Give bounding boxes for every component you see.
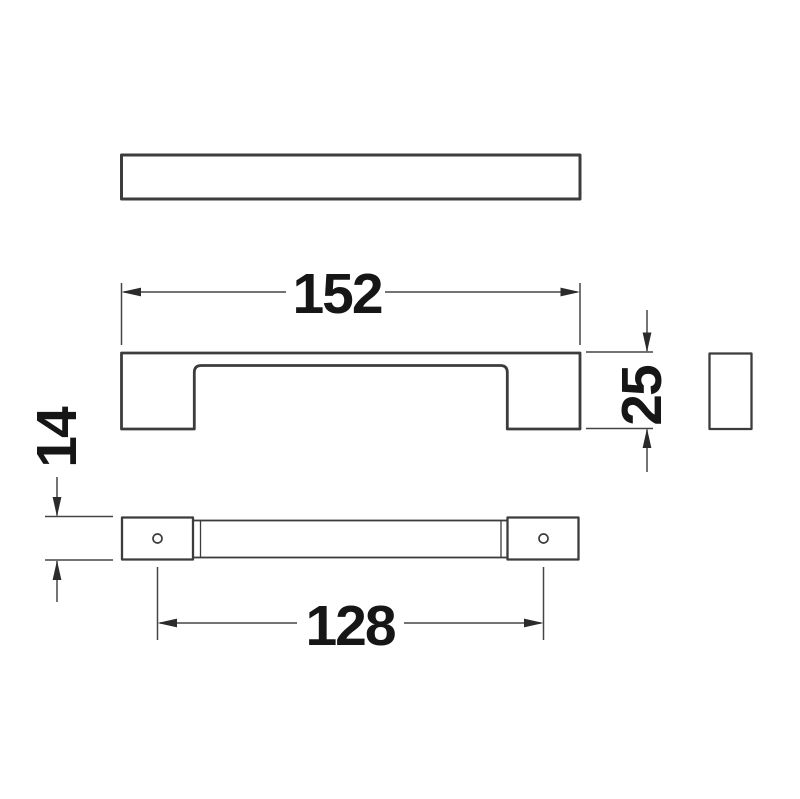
handle-dimension-drawing: 152 25 14: [0, 0, 800, 799]
technical-drawing-canvas: 152 25 14: [0, 0, 800, 799]
arrow-left-icon: [158, 619, 178, 628]
side-view: [710, 354, 752, 430]
screw-hole-left: [153, 534, 162, 543]
arrow-down-icon: [53, 497, 62, 517]
arrow-down-icon: [643, 333, 652, 353]
dim-14-label: 14: [25, 406, 89, 468]
arrow-right-icon: [524, 619, 544, 628]
top-view: [122, 155, 581, 199]
bottom-view: [122, 518, 579, 560]
dimension-25: 25: [586, 310, 674, 472]
screw-hole-right: [539, 534, 548, 543]
dimension-128: 128: [158, 567, 544, 658]
dim-128-label: 128: [305, 594, 394, 658]
arrow-left-icon: [122, 288, 142, 297]
dimension-152: 152: [122, 262, 581, 345]
dimension-14: 14: [25, 406, 113, 602]
front-view: [122, 353, 581, 429]
arrow-right-icon: [561, 288, 581, 297]
dim-152-label: 152: [292, 262, 381, 326]
arrow-up-icon: [643, 429, 652, 449]
front-view-outline: [122, 353, 581, 429]
dim-25-label: 25: [610, 365, 674, 426]
bottom-view-bar-outline: [193, 521, 508, 558]
side-view-outline: [710, 354, 752, 430]
arrow-up-icon: [53, 561, 62, 581]
top-view-outline: [122, 155, 581, 199]
